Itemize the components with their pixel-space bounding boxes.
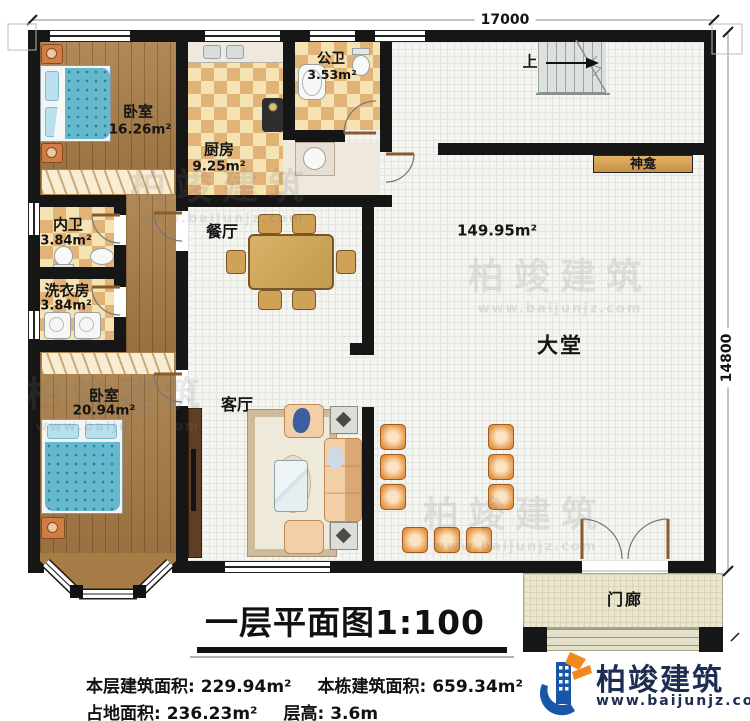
wall	[172, 561, 225, 573]
stat-floor-height: 层高: 3.6m	[283, 699, 378, 721]
wardrobe	[41, 169, 175, 195]
window	[50, 30, 130, 42]
hall-chair	[488, 454, 514, 480]
washbasin	[303, 147, 326, 170]
wall	[295, 130, 345, 142]
armchair	[284, 520, 324, 554]
wall	[362, 407, 374, 561]
laundry-area: 3.84m²	[40, 300, 91, 313]
side-table	[330, 406, 358, 434]
window	[28, 311, 40, 339]
dining-chair	[226, 250, 246, 274]
dining-chair	[336, 250, 356, 274]
stats-line-1: 本层建筑面积: 229.94m² 本栋建筑面积: 659.34m²	[86, 672, 523, 697]
stat-footprint: 占地面积: 236.23m²	[86, 699, 257, 721]
stairs-up-label: 上	[522, 55, 537, 70]
kitchen-sink	[203, 45, 221, 59]
hall-chair	[488, 424, 514, 450]
ensuite-bath-label: 内卫	[53, 218, 83, 233]
kitchen-area: 9.25m²	[192, 160, 245, 174]
stat-total-area: 本栋建筑面积: 659.34m²	[317, 672, 522, 697]
wall	[114, 245, 126, 287]
wall	[668, 561, 716, 573]
washing-machine	[74, 312, 101, 339]
washbasin	[90, 248, 114, 265]
toilet	[54, 246, 73, 266]
coffee-table	[274, 460, 308, 512]
hall-chair	[466, 527, 492, 553]
dining-chair	[258, 290, 282, 310]
wall	[704, 30, 716, 573]
hall-chair	[488, 484, 514, 510]
bed-bedroom1	[40, 65, 111, 142]
toilet-tank	[352, 48, 370, 55]
lobby-area: 149.95m²	[457, 224, 537, 239]
window	[225, 561, 330, 573]
wall	[114, 207, 126, 215]
title-underline	[197, 647, 507, 653]
nightstand	[41, 517, 65, 539]
wall	[176, 251, 188, 370]
wall	[28, 340, 126, 352]
wall	[176, 42, 188, 211]
pillow	[85, 424, 117, 439]
duvet	[65, 68, 110, 139]
brand-site: www.baijunjz.com	[596, 693, 750, 709]
public-bath-label: 公卫	[317, 52, 345, 66]
porch-column-right	[699, 627, 723, 652]
dining-chair	[292, 214, 316, 234]
bedroom1-label: 卧室	[123, 105, 153, 120]
wall	[28, 195, 126, 207]
plan-title: 一层平面图1:100	[155, 596, 535, 644]
title-underline-thin	[190, 656, 514, 658]
dining-label: 餐厅	[206, 224, 238, 240]
wall	[114, 317, 126, 352]
wall	[28, 30, 716, 42]
dining-chair	[292, 290, 316, 310]
side-table	[330, 522, 358, 550]
stats-line-2: 占地面积: 236.23m² 层高: 3.6m	[86, 699, 378, 721]
bed-bedroom2	[41, 419, 123, 514]
nightstand	[41, 143, 63, 163]
hall-chair	[402, 527, 428, 553]
hall-chair	[380, 424, 406, 450]
wall	[330, 561, 582, 573]
tv-cabinet	[188, 408, 202, 558]
floorplan-page: 神龛 柏竣建筑 www.baijunjz.com 柏竣建筑 www.baijun…	[0, 0, 750, 721]
washing-machine	[44, 312, 71, 339]
porch-steps	[523, 628, 723, 651]
porch-label: 门廊	[607, 592, 643, 608]
dim-width-label: 17000	[475, 13, 536, 27]
duvet	[45, 442, 120, 511]
laundry-label: 洗衣房	[44, 284, 89, 299]
bedroom2-area: 20.94m²	[73, 404, 136, 418]
wall	[176, 406, 188, 561]
window	[310, 30, 355, 42]
brand-logo-icon	[534, 650, 592, 716]
pillow	[47, 424, 79, 439]
hall-chair	[434, 527, 460, 553]
stove	[262, 98, 284, 132]
lobby-label: 大堂	[537, 336, 583, 357]
tv	[191, 449, 196, 511]
bedroom1-area: 16.26m²	[109, 123, 172, 137]
wall	[350, 343, 362, 355]
living-label: 客厅	[221, 397, 253, 413]
staircase	[538, 42, 606, 94]
public-bath-area: 3.53m²	[307, 69, 356, 82]
wall	[28, 30, 40, 573]
wall	[438, 143, 704, 155]
hall-chair	[380, 484, 406, 510]
pillow	[45, 71, 59, 101]
wall	[28, 267, 126, 279]
wall	[283, 42, 295, 140]
shrine-shelf: 神龛	[593, 155, 693, 173]
wall	[28, 561, 44, 573]
dining-chair	[258, 214, 282, 234]
dining-table	[248, 234, 334, 290]
dim-height-label: 14800	[720, 329, 734, 388]
shrine-label: 神龛	[630, 158, 656, 171]
ensuite-bath-area: 3.84m²	[40, 235, 91, 248]
kitchen-label: 厨房	[204, 143, 234, 158]
stat-floor-area: 本层建筑面积: 229.94m²	[86, 672, 291, 697]
bedroom2-label: 卧室	[89, 389, 119, 404]
wall	[380, 42, 392, 152]
window	[375, 30, 425, 42]
window	[28, 203, 40, 235]
wall	[362, 195, 374, 355]
kitchen-sink	[226, 45, 244, 59]
nightstand	[41, 44, 63, 64]
person	[328, 447, 343, 469]
hall-chair	[380, 454, 406, 480]
wardrobe	[41, 352, 175, 375]
window	[205, 30, 280, 42]
floor-corridor	[126, 195, 176, 355]
